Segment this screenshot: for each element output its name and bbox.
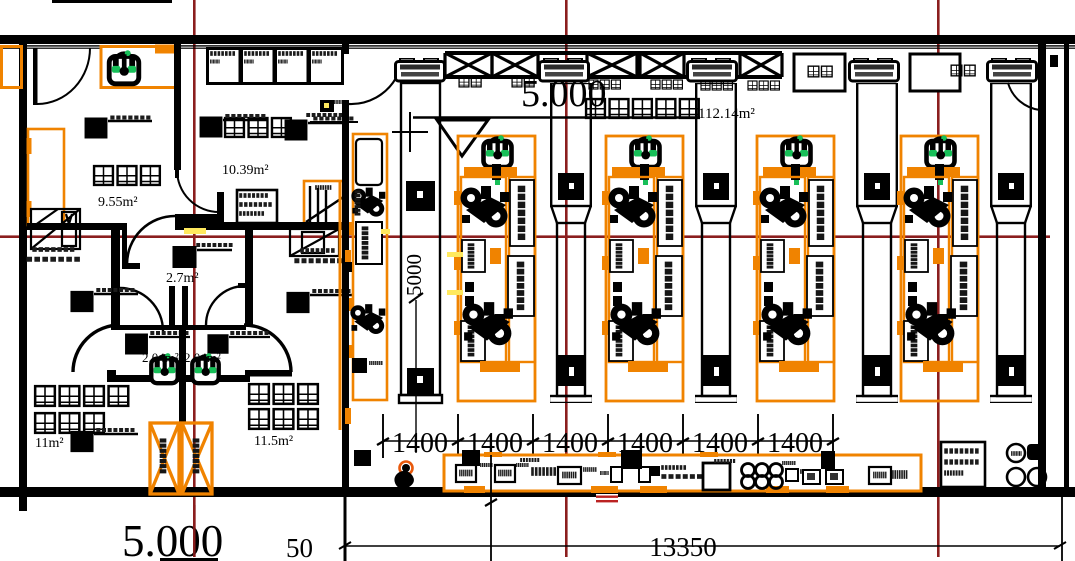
svg-text:5.000: 5.000	[122, 516, 223, 561]
svg-text:2.04m²: 2.04m²	[142, 350, 179, 365]
svg-text:2.7m²: 2.7m²	[166, 271, 199, 286]
svg-text:112.14m²: 112.14m²	[698, 106, 755, 122]
svg-text:1400: 1400	[392, 428, 448, 459]
svg-text:5000: 5000	[402, 254, 426, 296]
svg-text:2.04m²: 2.04m²	[184, 350, 221, 365]
svg-text:13350: 13350	[649, 532, 717, 561]
svg-text:10.39m²: 10.39m²	[222, 163, 269, 178]
svg-text:11.5m²: 11.5m²	[254, 434, 293, 449]
svg-text:50: 50	[286, 533, 313, 561]
svg-text:11m²: 11m²	[35, 436, 64, 451]
svg-text:9.55m²: 9.55m²	[98, 195, 138, 210]
